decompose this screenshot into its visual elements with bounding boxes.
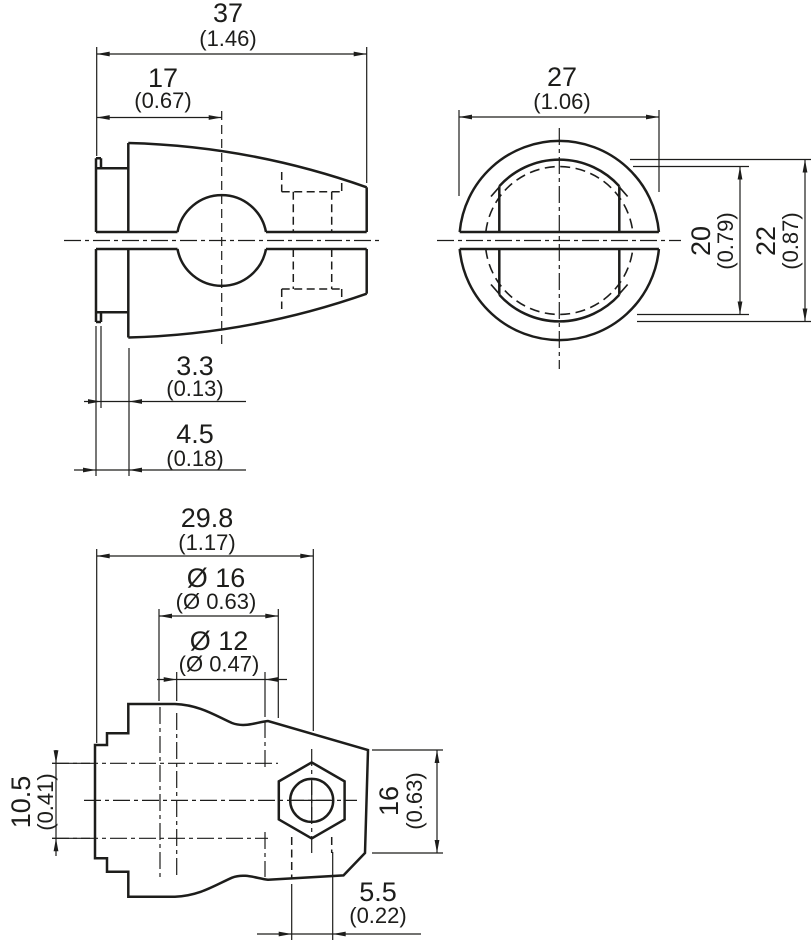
dim-flange-height-inch: (0.41) <box>33 773 58 830</box>
technical-drawing-page: 37 (1.46) 17 (0.67) 3.3 (0.13) 4.5 (0.18… <box>0 0 811 940</box>
dim-bore-center-inch: (0.67) <box>134 88 191 113</box>
dim-bore-dia-inch: (0.79) <box>713 212 738 269</box>
dim-o12-lines <box>157 672 287 717</box>
dim-head-height-inch: (0.63) <box>402 772 427 829</box>
dim37-lines <box>97 47 367 183</box>
dim-counterbore-inch: (Ø 0.63) <box>176 589 257 614</box>
bore-edge-verticals <box>160 707 265 877</box>
dim-bore-dia-mm: 20 <box>686 226 716 256</box>
dim-bore-dia-inch: (Ø 0.47) <box>179 652 260 677</box>
bottom-edge <box>128 294 366 338</box>
drawing-canvas: 37 (1.46) 17 (0.67) 3.3 (0.13) 4.5 (0.18… <box>0 0 811 940</box>
dim-seat-dia-inch: (0.87) <box>778 212 803 269</box>
hidden-pocket-lower <box>282 249 342 309</box>
hidden-pocket-upper <box>282 172 342 232</box>
dim-groove-inch: (0.13) <box>166 376 223 401</box>
dim-flange-height-mm: 10.5 <box>6 776 36 829</box>
dimensions: 27 (1.06) 20 (0.79) 22 (0.87) <box>459 62 811 322</box>
bottom-view: 29.8 (1.17) Ø 16 (Ø 0.63) Ø 12 (Ø 0.47) … <box>6 503 443 940</box>
dim-screw-hole-inch: (0.22) <box>349 903 406 928</box>
dimensions: 29.8 (1.17) Ø 16 (Ø 0.63) Ø 12 (Ø 0.47) … <box>6 503 443 940</box>
dim-flange-depth-mm: 4.5 <box>176 419 214 449</box>
dim-total-length-inch: (1.46) <box>199 26 256 51</box>
centerlines <box>64 111 382 346</box>
dim-flange-depth-inch: (0.18) <box>166 446 223 471</box>
dim-seat-dia-mm: 22 <box>751 226 781 256</box>
dim-outer-dia-mm: 27 <box>547 62 577 92</box>
dim-length-screw-axis-inch: (1.17) <box>178 530 235 555</box>
dimensions: 37 (1.46) 17 (0.67) 3.3 (0.13) 4.5 (0.18… <box>74 0 367 476</box>
dim-head-height-mm: 16 <box>374 786 404 816</box>
dim-total-length-mm: 37 <box>213 0 243 28</box>
top-edge <box>128 143 366 187</box>
dim-length-screw-axis-mm: 29.8 <box>181 503 234 533</box>
dim-outer-dia-inch: (1.06) <box>533 89 590 114</box>
front-view: 27 (1.06) 20 (0.79) 22 (0.87) <box>437 62 811 369</box>
side-view: 37 (1.46) 17 (0.67) 3.3 (0.13) 4.5 (0.18… <box>64 0 382 476</box>
